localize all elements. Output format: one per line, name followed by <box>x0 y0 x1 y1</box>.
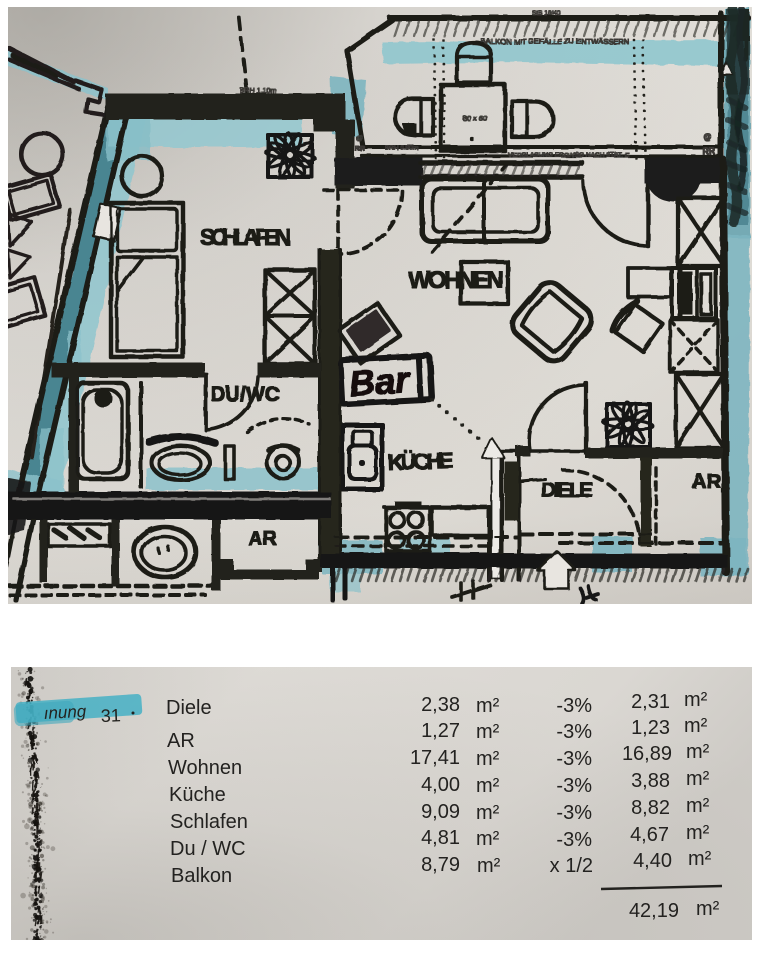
svg-text:@: @ <box>356 135 363 142</box>
svg-text:4,40: 4,40 <box>633 850 672 872</box>
svg-text:1,23: 1,23 <box>631 717 670 739</box>
svg-text:BRH 0.90m: BRH 0.90m <box>385 145 419 152</box>
svg-text:-3%: -3% <box>556 721 592 743</box>
svg-text:m²: m² <box>684 689 708 711</box>
svg-text:16,89: 16,89 <box>622 743 672 765</box>
svg-text:17,41: 17,41 <box>410 747 460 769</box>
svg-text:m²: m² <box>476 775 500 797</box>
svg-text:m²: m² <box>688 848 712 870</box>
svg-text:4,81: 4,81 <box>421 827 460 849</box>
svg-text:@: @ <box>704 133 712 142</box>
svg-text:WOHNEN: WOHNEN <box>408 267 504 294</box>
svg-text:9,09: 9,09 <box>421 801 460 823</box>
svg-text:3,88: 3,88 <box>631 770 670 792</box>
svg-text:1,27: 1,27 <box>421 720 460 742</box>
svg-text:31: 31 <box>100 705 121 726</box>
svg-text:2,31: 2,31 <box>631 691 670 713</box>
svg-text:m²: m² <box>686 795 710 817</box>
svg-text:-3%: -3% <box>556 829 592 851</box>
svg-text:BALKON MIT GEFÄLLE ZU ENTWÄSSE: BALKON MIT GEFÄLLE ZU ENTWÄSSERN <box>481 37 629 46</box>
svg-text:m²: m² <box>686 822 710 844</box>
svg-text:8,79: 8,79 <box>421 854 460 876</box>
svg-text:42,19: 42,19 <box>629 900 679 922</box>
svg-text:-3%: -3% <box>556 775 592 797</box>
svg-text:DIELE: DIELE <box>541 479 593 502</box>
svg-text:x 1/2: x 1/2 <box>550 855 593 877</box>
svg-text:4,67: 4,67 <box>630 824 669 846</box>
svg-text:m²: m² <box>476 748 500 770</box>
svg-text:Diele: Diele <box>166 697 212 719</box>
svg-text:m²: m² <box>476 828 500 850</box>
svg-text:ınung: ınung <box>43 702 87 723</box>
svg-text:m²: m² <box>684 715 708 737</box>
svg-text:StB 16/40: StB 16/40 <box>532 10 561 17</box>
svg-text:-3%: -3% <box>556 802 592 824</box>
svg-text:AR: AR <box>248 528 277 550</box>
svg-text:KÜCHE: KÜCHE <box>387 448 454 475</box>
svg-text:2,38: 2,38 <box>421 694 460 716</box>
svg-text:m²: m² <box>686 741 710 763</box>
svg-text:Küche: Küche <box>169 784 226 806</box>
svg-text:Balkon: Balkon <box>171 865 232 887</box>
svg-text:m²: m² <box>477 855 501 877</box>
svg-text:4,00: 4,00 <box>421 774 460 796</box>
svg-text:m²: m² <box>696 898 720 920</box>
svg-text:Du / WC: Du / WC <box>170 838 246 860</box>
svg-text:RR: RR <box>702 146 715 156</box>
svg-text:m²: m² <box>686 768 710 790</box>
svg-text:SCHLAFEN: SCHLAFEN <box>200 224 291 250</box>
svg-text:Wohnen: Wohnen <box>168 757 242 779</box>
svg-text:-3%: -3% <box>556 695 592 717</box>
svg-text:m²: m² <box>476 802 500 824</box>
svg-text:-3%: -3% <box>556 748 592 770</box>
svg-text:m²: m² <box>476 721 500 743</box>
svg-text:AR: AR <box>167 730 195 752</box>
svg-text:Bar: Bar <box>348 359 413 404</box>
svg-text:m²: m² <box>476 695 500 717</box>
svg-text:VERGLASUNG ESG/VSG NACH STAT.: VERGLASUNG ESG/VSG NACH STAT. E <box>508 152 630 159</box>
svg-text:AR: AR <box>692 471 721 493</box>
svg-text:BRH 1.10m: BRH 1.10m <box>240 88 276 95</box>
svg-text:RR: RR <box>355 146 365 153</box>
svg-text:80 x 80: 80 x 80 <box>463 114 488 123</box>
svg-text:Schlafen: Schlafen <box>170 811 248 833</box>
svg-text:DU/WC: DU/WC <box>211 383 280 407</box>
svg-text:8,82: 8,82 <box>631 797 670 819</box>
